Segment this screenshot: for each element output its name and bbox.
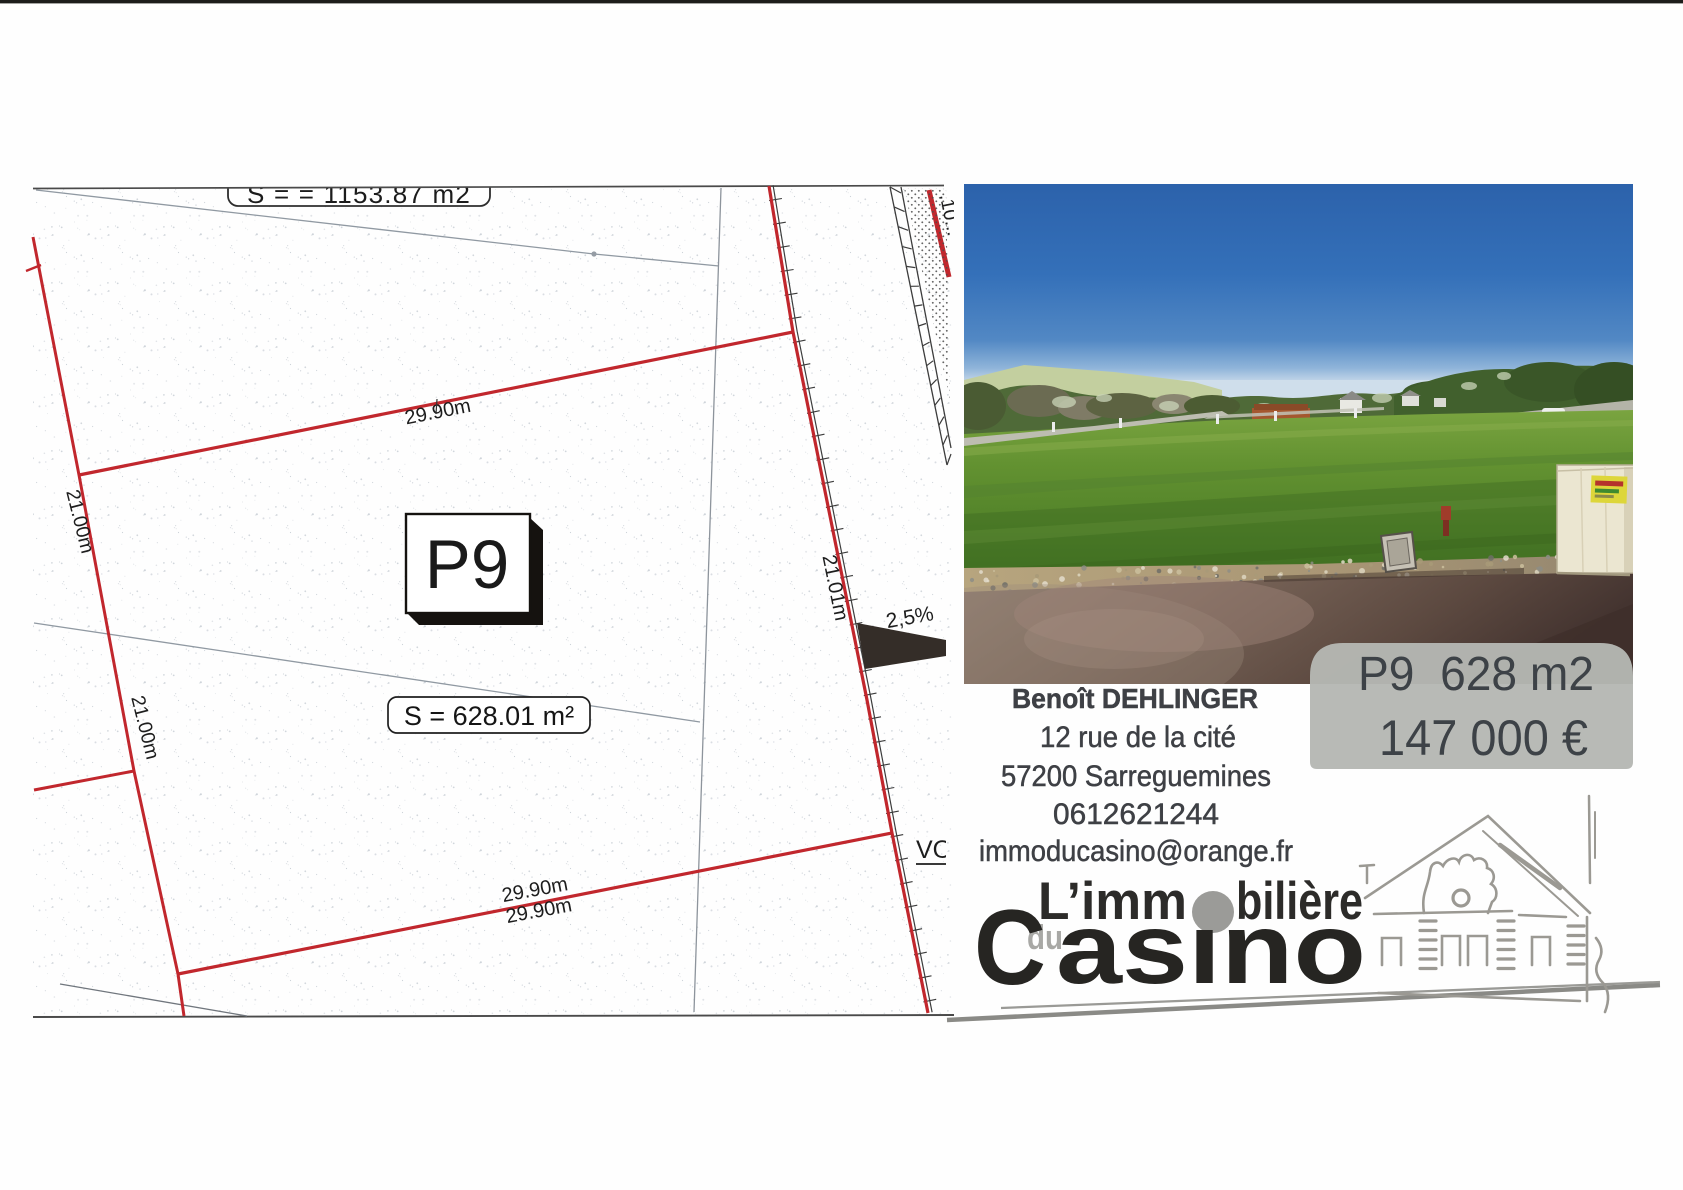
svg-text:147 000 €: 147 000 € [1379, 710, 1588, 766]
svg-text:immoducasino@orange.fr: immoducasino@orange.fr [979, 835, 1293, 868]
svg-text:asıno: asıno [1056, 893, 1366, 1005]
svg-text:57200 Sarreguemines: 57200 Sarreguemines [1001, 760, 1271, 793]
svg-text:P9: P9 [425, 526, 509, 603]
svg-text:C: C [974, 887, 1046, 1007]
svg-text:12 rue de la cité: 12 rue de la cité [1040, 721, 1236, 754]
svg-text:0612621244: 0612621244 [1053, 798, 1219, 831]
svg-text:P9 628 m2: P9 628 m2 [1358, 648, 1594, 701]
svg-text:Benoît DEHLINGER: Benoît DEHLINGER [1012, 683, 1258, 714]
svg-text:S = 628.01 m²: S = 628.01 m² [404, 701, 574, 731]
